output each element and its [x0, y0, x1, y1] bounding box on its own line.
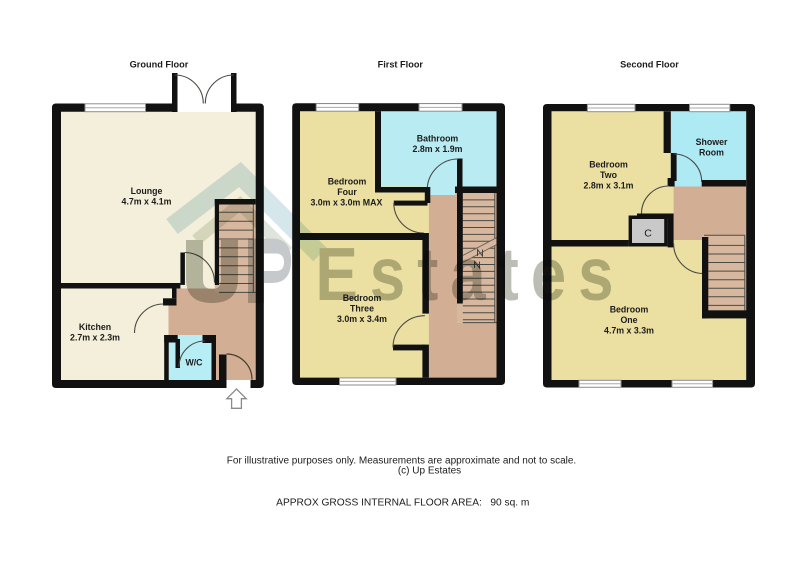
svg-text:4.7m x 3.3m: 4.7m x 3.3m	[604, 326, 654, 336]
svg-text:Second Floor: Second Floor	[620, 60, 679, 70]
svg-text:Two: Two	[600, 170, 618, 180]
svg-text:APPROX GROSS INTERNAL FLOOR AR: APPROX GROSS INTERNAL FLOOR AREA: 90 sq.…	[276, 498, 529, 509]
svg-text:Shower: Shower	[696, 137, 728, 147]
svg-text:W/C: W/C	[185, 358, 203, 368]
svg-text:2.7m x 2.3m: 2.7m x 2.3m	[70, 333, 120, 343]
svg-text:Estates: Estates	[315, 232, 625, 316]
svg-text:(c) Up Estates: (c) Up Estates	[398, 466, 461, 477]
svg-text:Ground Floor: Ground Floor	[130, 60, 189, 70]
svg-text:Room: Room	[699, 148, 724, 158]
svg-text:Four: Four	[337, 187, 357, 197]
svg-text:2.8m x 3.1m: 2.8m x 3.1m	[584, 181, 634, 191]
svg-text:One: One	[620, 315, 637, 325]
svg-text:Bathroom: Bathroom	[417, 134, 459, 144]
svg-text:Lounge: Lounge	[131, 186, 163, 196]
svg-text:4.7m x 4.1m: 4.7m x 4.1m	[122, 197, 172, 207]
svg-text:C: C	[644, 228, 652, 240]
svg-text:First Floor: First Floor	[378, 60, 424, 70]
svg-text:Bedroom: Bedroom	[589, 160, 628, 170]
svg-text:2.8m x 1.9m: 2.8m x 1.9m	[413, 144, 463, 154]
svg-text:3.0m x 3.0m MAX: 3.0m x 3.0m MAX	[310, 198, 382, 208]
svg-text:Bedroom: Bedroom	[328, 177, 367, 187]
svg-text:Kitchen: Kitchen	[79, 322, 111, 332]
